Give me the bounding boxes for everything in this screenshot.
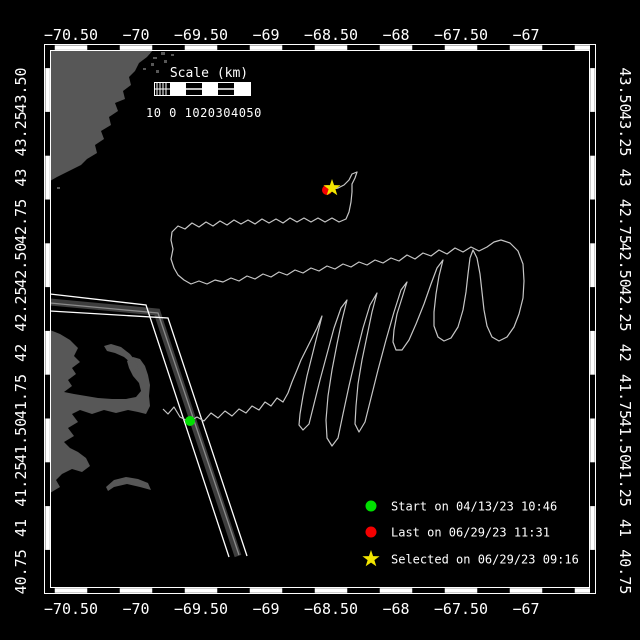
left-axis-label: 43.50 xyxy=(12,67,30,112)
map-window: −70.50−70−69.50−69−68.50−68−67.50−67−70.… xyxy=(0,0,640,640)
legend-start-marker xyxy=(366,501,377,512)
border-segment xyxy=(445,45,478,50)
left-axis-label: 41.50 xyxy=(12,418,30,463)
legend: Start on 04/13/23 10:46Last on 06/29/23 … xyxy=(362,500,578,567)
border-segment xyxy=(590,331,595,375)
bottom-axis-label: −69.50 xyxy=(174,600,228,618)
border-segment xyxy=(380,45,413,50)
islet xyxy=(164,60,167,63)
right-axis-label: 42.50 xyxy=(616,243,634,288)
left-axis-label: 41.75 xyxy=(12,374,30,419)
border-segment xyxy=(120,588,153,593)
border-segment xyxy=(45,243,50,287)
islet xyxy=(143,68,146,70)
left-axis-label: 43 xyxy=(12,169,30,187)
islet xyxy=(121,55,125,58)
border-segment xyxy=(590,419,595,463)
islet xyxy=(112,51,117,54)
right-axis-label: 41.25 xyxy=(616,462,634,507)
top-axis-label: −69 xyxy=(252,26,279,44)
border-segment xyxy=(45,331,50,375)
left-axis-label: 42 xyxy=(12,344,30,362)
islet xyxy=(146,51,150,54)
islet xyxy=(161,52,165,55)
border-segment xyxy=(250,45,283,50)
scalebar-labels: 10 0 1020304050 xyxy=(146,106,262,120)
top-axis-label: −67 xyxy=(512,26,539,44)
border-segment xyxy=(575,45,590,50)
islet xyxy=(137,56,142,59)
right-axis-label: 42.25 xyxy=(616,286,634,331)
border-segment xyxy=(185,588,218,593)
legend-item[interactable]: Selected on 06/29/23 09:16 xyxy=(362,550,578,567)
top-axis-label: −70 xyxy=(122,26,149,44)
bottom-axis-label: −69 xyxy=(252,600,279,618)
top-axis-label: −67.50 xyxy=(434,26,488,44)
scalebar-title: Scale (km) xyxy=(170,66,248,81)
border-segment xyxy=(185,45,218,50)
bottom-axis-label: −70 xyxy=(122,600,149,618)
left-axis-label: 41.25 xyxy=(12,462,30,507)
border-segment xyxy=(590,68,595,112)
border-segment xyxy=(315,45,348,50)
islet xyxy=(151,63,154,66)
left-axis-label: 43.25 xyxy=(12,111,30,156)
legend-last-marker xyxy=(366,527,377,538)
islet xyxy=(153,57,157,59)
left-axis-label: 42.50 xyxy=(12,243,30,288)
right-axis-label: 42 xyxy=(616,344,634,362)
right-axis-label: 42.75 xyxy=(616,199,634,244)
right-axis-label: 41.75 xyxy=(616,374,634,419)
border-segment xyxy=(55,588,88,593)
bottom-axis-label: −68.50 xyxy=(304,600,358,618)
right-axis-label: 43 xyxy=(616,169,634,187)
start-position-marker[interactable] xyxy=(185,416,195,426)
islet xyxy=(156,70,159,73)
right-axis-label: 43.50 xyxy=(616,67,634,112)
border-segment xyxy=(45,419,50,463)
border-segment xyxy=(590,156,595,200)
bottom-axis-label: −68 xyxy=(382,600,409,618)
legend-item[interactable]: Start on 04/13/23 10:46 xyxy=(366,500,558,514)
right-axis-label: 41 xyxy=(616,519,634,537)
islet xyxy=(171,54,174,56)
border-segment xyxy=(45,68,50,112)
glider-track-map[interactable]: −70.50−70−69.50−69−68.50−68−67.50−67−70.… xyxy=(0,0,640,640)
legend-label: Last on 06/29/23 11:31 xyxy=(391,526,550,540)
border-segment xyxy=(445,588,478,593)
border-segment xyxy=(250,588,283,593)
top-axis-label: −70.50 xyxy=(44,26,98,44)
left-axis-label: 41 xyxy=(12,519,30,537)
border-segment xyxy=(45,506,50,550)
right-axis-label: 40.75 xyxy=(616,549,634,594)
border-segment xyxy=(590,243,595,287)
border-segment xyxy=(510,588,543,593)
border-segment xyxy=(380,588,413,593)
border-segment xyxy=(45,156,50,200)
legend-label: Selected on 06/29/23 09:16 xyxy=(391,553,579,567)
top-axis-label: −68 xyxy=(382,26,409,44)
left-axis-label: 42.75 xyxy=(12,199,30,244)
right-axis-label: 41.50 xyxy=(616,418,634,463)
border-segment xyxy=(120,45,153,50)
bottom-axis-label: −67.50 xyxy=(434,600,488,618)
bottom-axis-label: −67 xyxy=(512,600,539,618)
islet xyxy=(57,187,60,189)
legend-item[interactable]: Last on 06/29/23 11:31 xyxy=(366,526,550,540)
right-axis-label: 43.25 xyxy=(616,111,634,156)
left-axis-label: 40.75 xyxy=(12,549,30,594)
border-segment xyxy=(55,45,88,50)
border-segment xyxy=(575,588,590,593)
legend-label: Start on 04/13/23 10:46 xyxy=(391,500,557,514)
border-segment xyxy=(315,588,348,593)
border-segment xyxy=(510,45,543,50)
bottom-axis-label: −70.50 xyxy=(44,600,98,618)
border-segment xyxy=(590,506,595,550)
left-axis-label: 42.25 xyxy=(12,286,30,331)
top-axis-label: −69.50 xyxy=(174,26,228,44)
top-axis-label: −68.50 xyxy=(304,26,358,44)
